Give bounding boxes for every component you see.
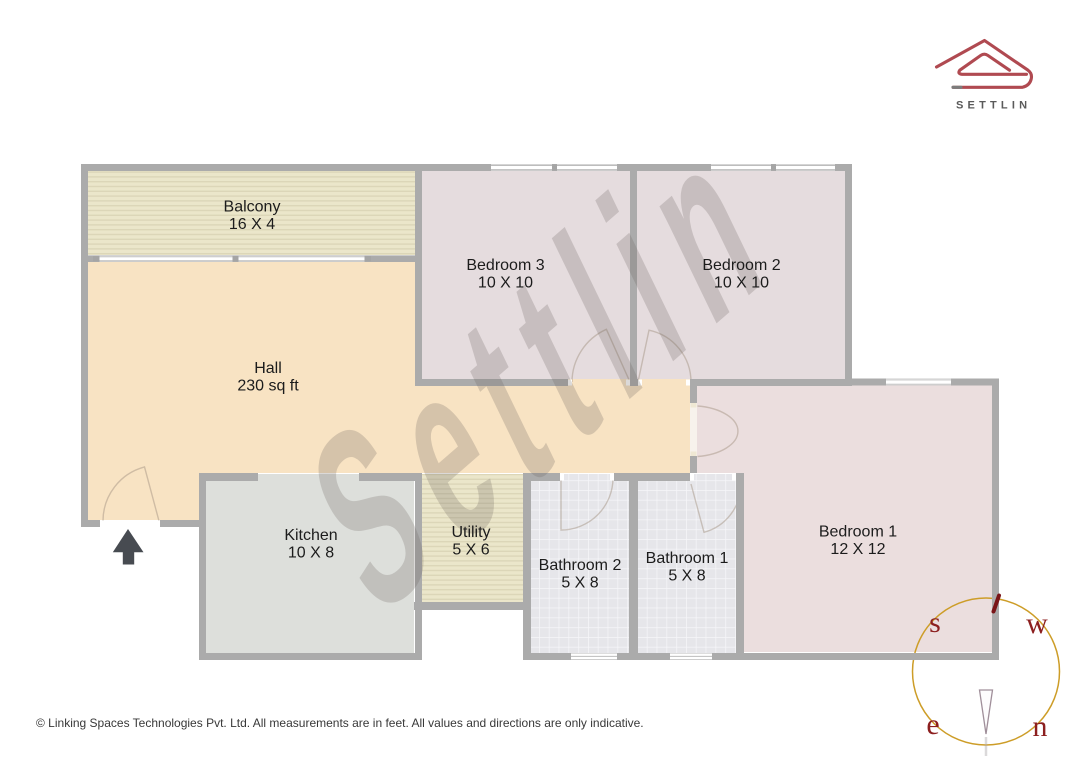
svg-text:s: s	[929, 606, 941, 639]
svg-text:5 X 6: 5 X 6	[452, 542, 489, 559]
svg-text:10 X 10: 10 X 10	[478, 275, 533, 292]
svg-text:Bedroom 1: Bedroom 1	[819, 524, 897, 541]
svg-text:Bedroom 2: Bedroom 2	[702, 257, 780, 274]
svg-text:Bedroom 3: Bedroom 3	[466, 257, 544, 274]
svg-text:230 sq ft: 230 sq ft	[237, 378, 299, 395]
svg-text:Bathroom 1: Bathroom 1	[646, 550, 729, 567]
svg-text:12 X 12: 12 X 12	[830, 541, 885, 558]
svg-text:© Linking Spaces Technologies: © Linking Spaces Technologies Pvt. Ltd. …	[36, 716, 644, 730]
svg-text:Utility: Utility	[451, 524, 490, 541]
svg-text:10 X 8: 10 X 8	[288, 545, 334, 562]
svg-text:SETTLIN: SETTLIN	[956, 100, 1031, 112]
svg-text:Kitchen: Kitchen	[284, 527, 337, 544]
svg-text:Balcony: Balcony	[224, 199, 281, 216]
svg-text:e: e	[926, 708, 939, 741]
svg-text:16 X 4: 16 X 4	[229, 216, 275, 233]
svg-text:w: w	[1026, 607, 1048, 640]
svg-text:5 X 8: 5 X 8	[668, 568, 705, 585]
svg-text:5 X 8: 5 X 8	[561, 575, 598, 592]
svg-text:n: n	[1033, 710, 1048, 743]
svg-text:10 X 10: 10 X 10	[714, 275, 769, 292]
svg-text:Bathroom 2: Bathroom 2	[539, 557, 622, 574]
svg-text:Hall: Hall	[254, 360, 282, 377]
